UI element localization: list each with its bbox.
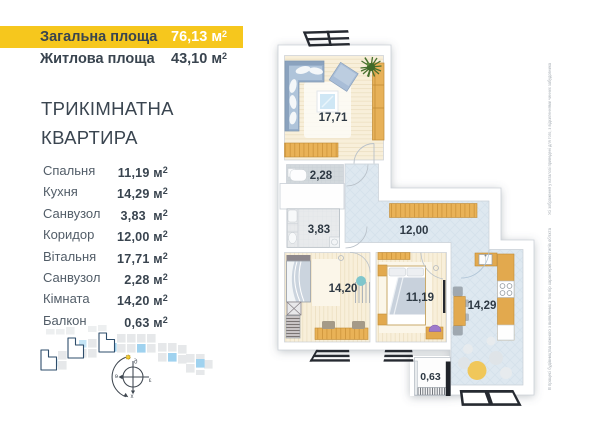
svg-text:14,29: 14,29	[468, 300, 497, 312]
svg-text:17,71: 17,71	[319, 112, 348, 124]
svg-text:х: х	[131, 394, 134, 400]
svg-text:12,00: 12,00	[400, 225, 429, 237]
svg-text:3,83: 3,83	[308, 224, 330, 236]
svg-text:14,20: 14,20	[329, 283, 358, 295]
svg-text:11,19: 11,19	[406, 292, 434, 304]
svg-text:0,63: 0,63	[420, 371, 441, 383]
svg-text:б: б	[134, 360, 138, 366]
svg-text:е: е	[114, 374, 118, 380]
svg-text:з: з	[149, 378, 152, 384]
svg-text:2,28: 2,28	[310, 170, 333, 182]
svg-text:Усі зображення у каталозі прив: Усі зображення у каталозі приведені для …	[547, 62, 552, 215]
svg-text:В процесі будівництва кожного: В процесі будівництва кожного з виявлени…	[547, 227, 552, 390]
